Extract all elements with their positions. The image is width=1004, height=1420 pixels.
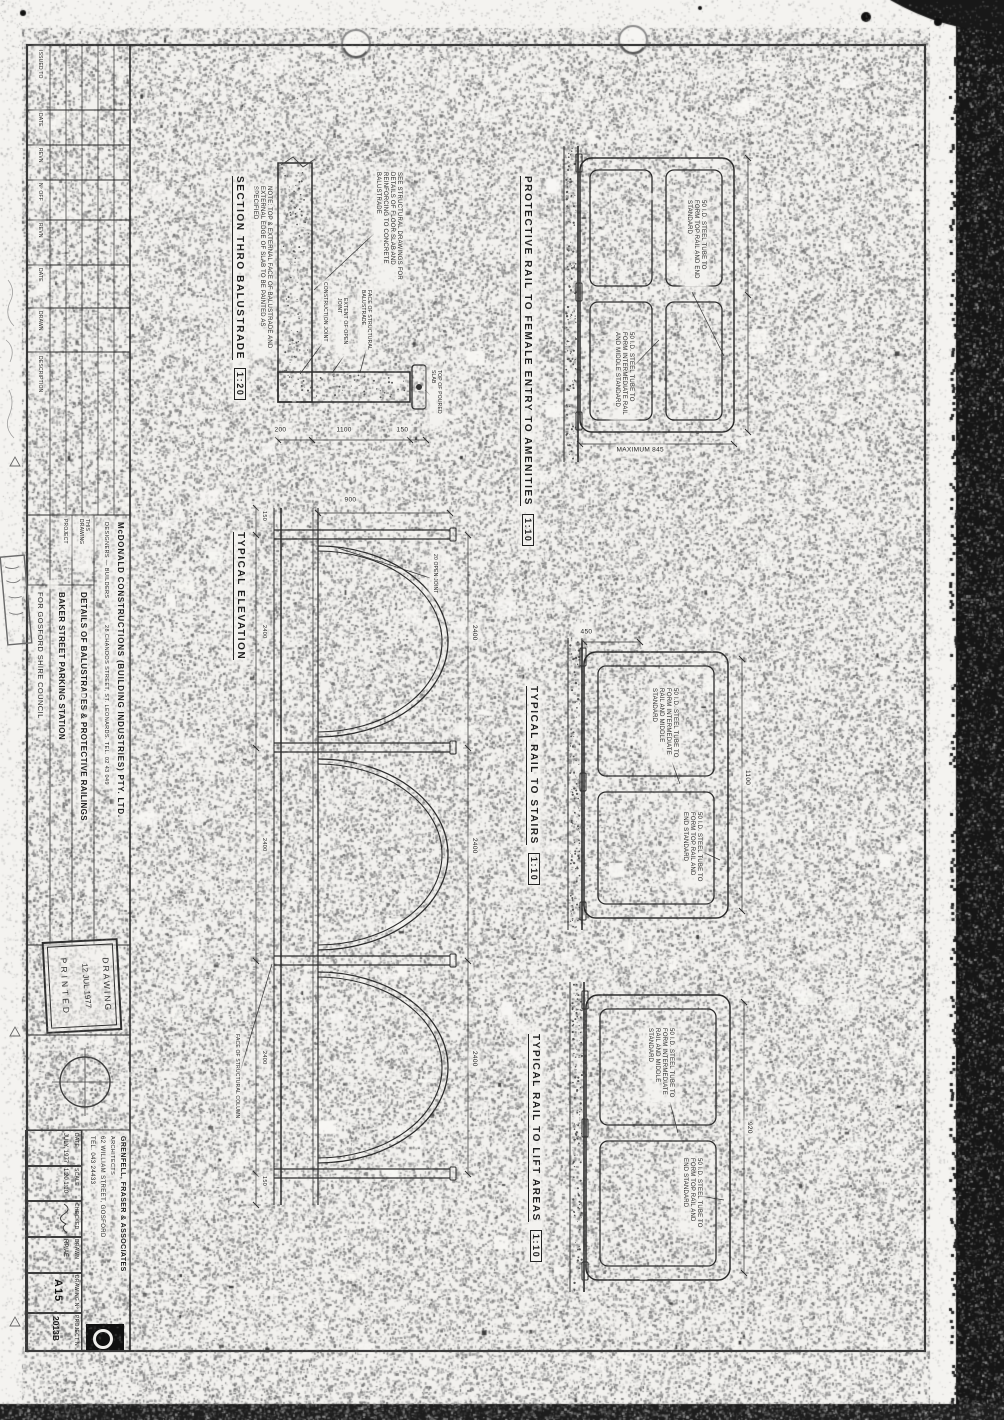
scanned-drawing-page: PROTECTIVE RAIL TO FEMALE ENTRY TO AMENI… — [0, 0, 1004, 1420]
margin-artifacts — [0, 0, 1004, 1420]
